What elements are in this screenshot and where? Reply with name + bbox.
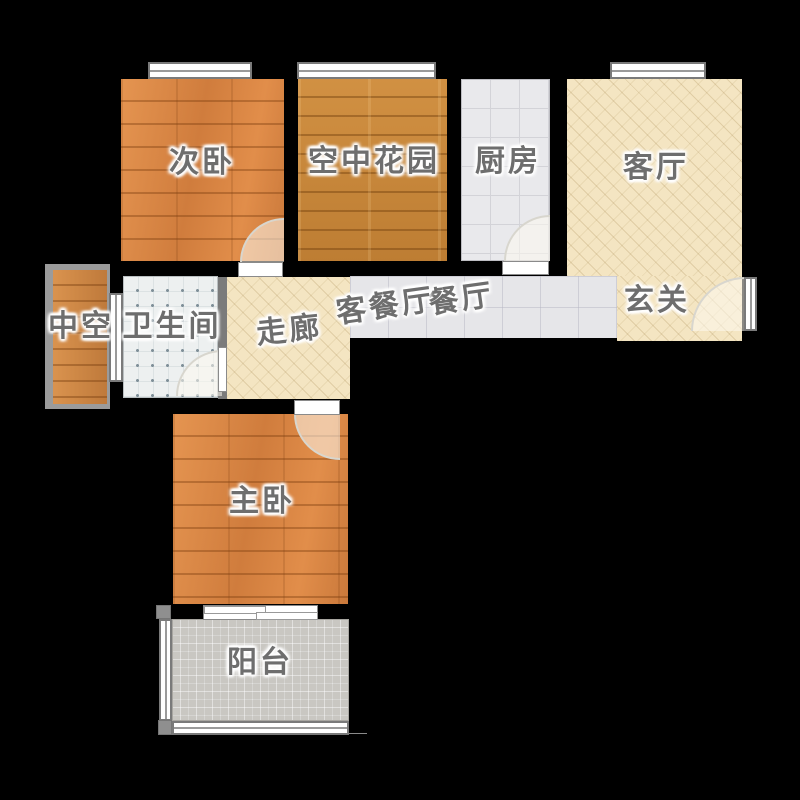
door-leaf-bathroom[interactable] xyxy=(218,347,227,392)
balcony-corner-post-bottom xyxy=(158,720,172,735)
window-living-room[interactable] xyxy=(610,62,706,79)
window-balcony-bottom[interactable] xyxy=(172,721,349,735)
room-label-void-shaft: 中空 xyxy=(48,301,114,345)
window-pane-divider xyxy=(115,295,117,380)
window-pane-divider xyxy=(299,70,434,72)
window-secondary-bedroom[interactable] xyxy=(148,62,252,79)
room-label-living-room: 客厅 xyxy=(623,142,689,186)
room-label-secondary-bedroom: 次卧 xyxy=(169,137,235,181)
room-label-kitchen: 厨房 xyxy=(475,136,541,180)
floorplan-canvas: 次卧 空中花园 厨房 客厅 玄关 餐厅 客餐厅 走廊 中空 卫生间 主卧 阳台 xyxy=(0,0,800,800)
door-leaf-secondary-bedroom[interactable] xyxy=(238,262,283,277)
room-label-balcony: 阳台 xyxy=(227,637,293,681)
window-pane-divider xyxy=(165,621,167,719)
room-label-bathroom: 卫生间 xyxy=(123,301,222,345)
room-label-sky-garden: 空中花园 xyxy=(308,136,440,180)
room-label-master-bedroom: 主卧 xyxy=(229,476,295,520)
door-leaf-divider xyxy=(750,279,752,329)
window-pane-divider xyxy=(612,70,704,72)
window-balcony-left[interactable] xyxy=(159,619,172,721)
room-label-corridor: 走廊 xyxy=(254,302,324,353)
door-leaf-entry[interactable] xyxy=(744,277,757,331)
sliding-door-panel-right xyxy=(256,612,318,620)
door-leaf-master-bedroom[interactable] xyxy=(294,400,340,415)
balcony-edge-line xyxy=(349,733,367,734)
balcony-corner-post-top xyxy=(156,605,171,619)
sliding-door-balcony[interactable] xyxy=(203,605,318,620)
window-pane-divider xyxy=(150,70,250,72)
door-leaf-kitchen[interactable] xyxy=(502,261,549,275)
window-pane-divider xyxy=(174,727,347,729)
window-sky-garden[interactable] xyxy=(297,62,436,79)
room-label-entry-hall: 玄关 xyxy=(624,275,690,319)
